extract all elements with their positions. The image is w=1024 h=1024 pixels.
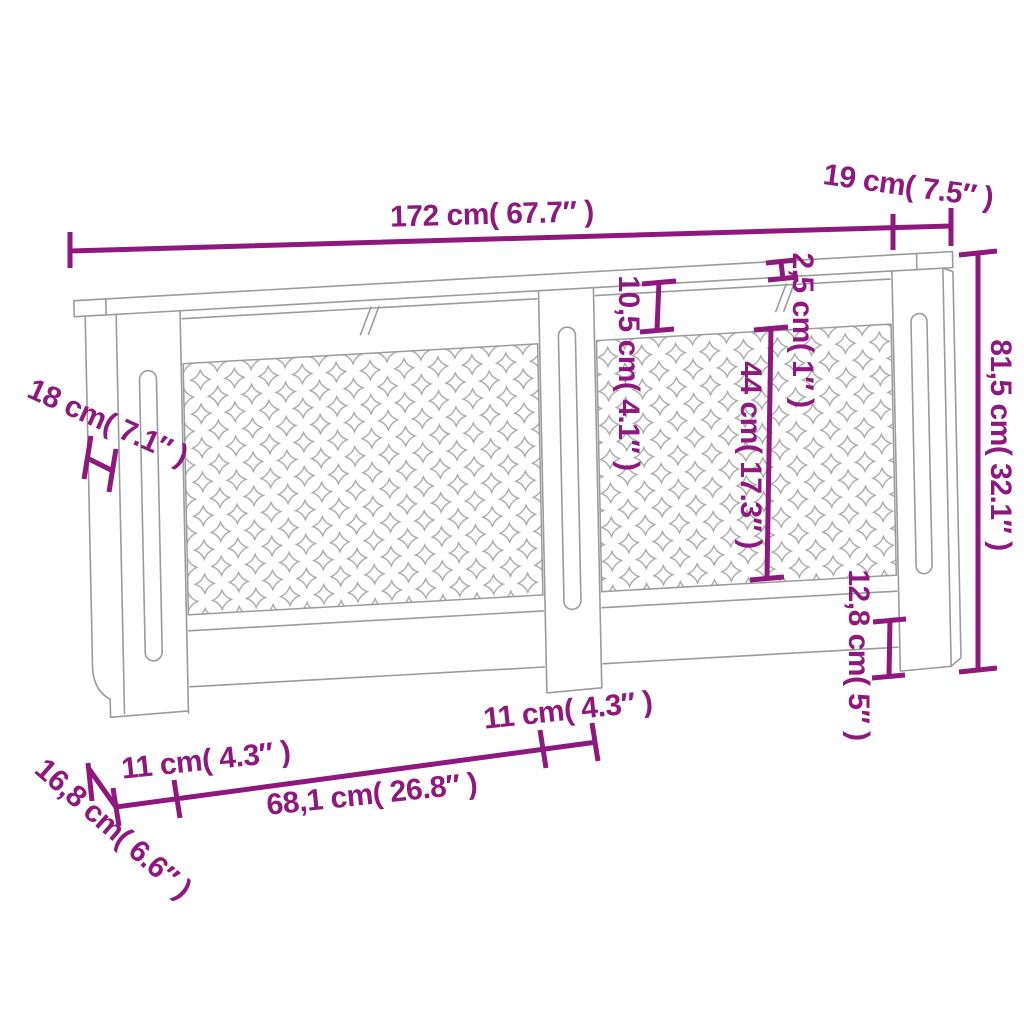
dimension-label-overall-height: 81,5 cm( 32.1″ ) [984, 339, 1017, 551]
dimension-label-center-panel-width: 68,1 cm( 26.8″ ) [265, 767, 479, 822]
right-side-post [892, 268, 961, 672]
dim-top-shelf-depth: 19 cm( 7.5″ ) [821, 158, 995, 215]
center-post-slot [558, 327, 581, 610]
rail-joint-marks [360, 283, 795, 334]
dim-side-depth: 18 cm( 7.1″ ) [23, 373, 193, 492]
dimension-label-shelf-thickness: 2,5 cm( 1″ ) [786, 252, 819, 407]
dimension-label-center-post-width: 11 cm( 4.3″ ) [482, 685, 654, 736]
dim-bottom-widths: 11 cm( 4.3″ ) 68,1 cm( 26.8″ ) 11 cm( 4.… [113, 685, 654, 826]
dimension-label-overall-width: 172 cm( 67.7″ ) [390, 195, 594, 233]
dimension-label-top-shelf-depth: 19 cm( 7.5″ ) [821, 158, 995, 215]
dim-overall-height: 81,5 cm( 32.1″ ) [959, 251, 1017, 672]
top-shelf [74, 252, 953, 325]
dimension-label-side-depth: 18 cm( 7.1″ ) [23, 373, 193, 473]
left-side-post [85, 311, 188, 718]
radiator-cover-dimension-diagram: 172 cm( 67.7″ ) 19 cm( 7.5″ ) 18 cm( 7.1… [0, 0, 1024, 1024]
grille-panel-left [183, 344, 543, 615]
furniture-line-art [74, 252, 961, 719]
dimension-label-top-rail-height: 10,5 cm( 4.1″ ) [612, 275, 645, 470]
right-post-slot [911, 313, 932, 574]
dim-bottom-rail-height: 12,8 cm( 5″ ) [842, 569, 906, 740]
dimension-label-grille-height: 44 cm( 17.3″ ) [734, 361, 767, 548]
center-post [538, 288, 601, 693]
left-post-slot [139, 370, 162, 661]
dimension-label-left-post-width: 11 cm( 4.3″ ) [120, 735, 292, 786]
diagram-stage: 172 cm( 67.7″ ) 19 cm( 7.5″ ) 18 cm( 7.1… [0, 0, 1024, 1024]
dimension-label-bottom-rail-height: 12,8 cm( 5″ ) [842, 569, 875, 740]
